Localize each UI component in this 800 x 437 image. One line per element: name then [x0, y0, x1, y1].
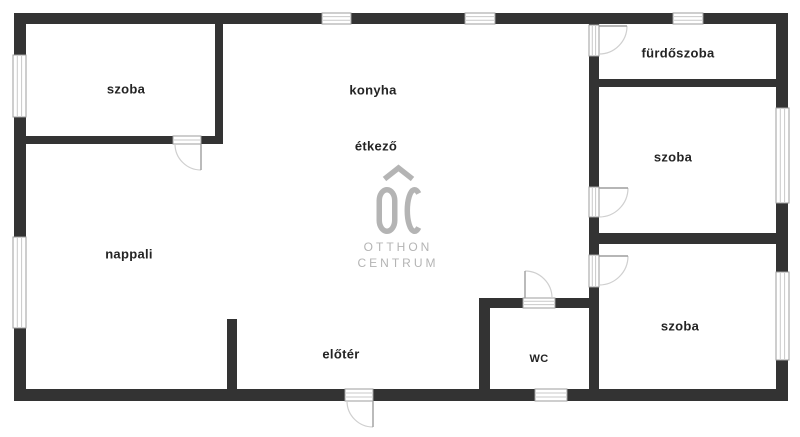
logo-letter-o: [379, 190, 395, 232]
window-right-szoba-middle: [776, 108, 789, 203]
room-label-szoba-bottomright: szoba: [661, 319, 699, 334]
wall-top: [14, 13, 788, 24]
room-label-konyha: konyha: [349, 83, 396, 98]
room-label-eloter: előtér: [322, 347, 359, 362]
logo-letter-c: [407, 190, 418, 232]
room-label-etkezo: étkező: [355, 139, 397, 154]
wall-wc-west: [479, 298, 490, 389]
wall-szoba-topleft-east: [215, 24, 223, 144]
room-label-wc: wc: [530, 353, 549, 365]
wall-eloter-stub: [227, 319, 237, 389]
wc-door: [523, 271, 555, 308]
wall-bottom: [14, 389, 788, 401]
wall-furdoszoba-south: [599, 79, 776, 87]
window-right-szoba-bottom: [776, 272, 789, 360]
window-bottom-wc: [535, 389, 567, 401]
window-top-konyha-left: [322, 13, 351, 24]
room-label-nappali: nappali: [105, 247, 153, 262]
window-left-upper: [13, 55, 26, 117]
szoba-topleft-door: [173, 136, 201, 170]
window-top-furdoszoba: [673, 13, 703, 24]
szoba-bottomright-door: [589, 255, 628, 287]
wall-szoba-divider: [599, 233, 776, 244]
logo-oc-monogram: [367, 163, 429, 235]
szoba-right-door: [589, 187, 628, 217]
logo-text-otthon: OTTHON: [358, 239, 439, 255]
floorplan: szoba konyha étkező fürdőszoba szoba nap…: [0, 0, 800, 437]
window-top-konyha-right: [465, 13, 495, 24]
logo-roof-icon: [384, 168, 412, 179]
room-label-szoba-topleft: szoba: [107, 82, 145, 97]
window-left-lower: [13, 237, 26, 328]
logo-text-centrum: CENTRUM: [358, 255, 439, 271]
entrance-door: [345, 389, 373, 427]
room-label-furdoszoba: fürdőszoba: [641, 46, 714, 61]
furdoszoba-door: [589, 25, 627, 56]
room-label-szoba-right: szoba: [654, 150, 692, 165]
watermark-logo: OTTHON CENTRUM: [358, 163, 439, 271]
